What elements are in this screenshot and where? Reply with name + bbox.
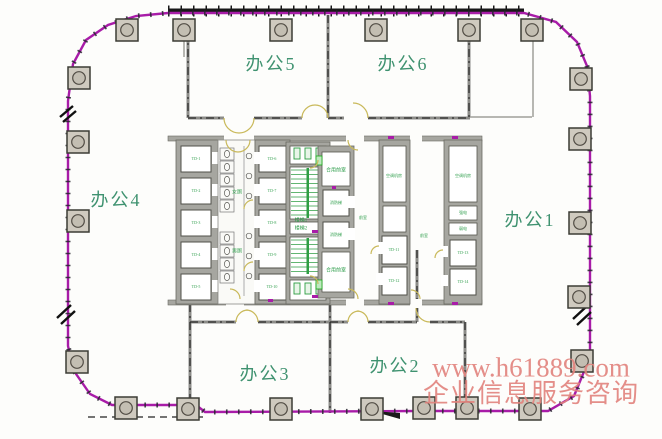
office-2-label: 办公2 xyxy=(370,357,421,375)
elevator-tag: TD-2 xyxy=(192,189,201,193)
elevator-tag: TD-10 xyxy=(267,285,278,289)
elevator-tag: TD-13 xyxy=(458,251,469,255)
elevator-tag: TD-7 xyxy=(268,189,277,193)
stair-2-label: 楼梯2 xyxy=(295,227,308,232)
wc-men-label: 男厕 xyxy=(232,250,242,255)
front-room-right-label: 前室 xyxy=(420,234,428,238)
office-5-label: 办公5 xyxy=(246,55,297,73)
office-6-label: 办公6 xyxy=(378,55,429,73)
toilet-strip xyxy=(218,140,255,304)
stair-rail-1 xyxy=(307,168,310,218)
stair-rail-2 xyxy=(307,238,310,274)
elevator-tag: TD-12 xyxy=(389,279,400,283)
wc-women-label: 女厕 xyxy=(232,191,242,196)
fire-elevator-1-label: 消防梯 xyxy=(330,201,342,205)
elevator-tag: TD-9 xyxy=(268,253,277,257)
elevator-tag: TD-8 xyxy=(268,221,277,225)
front-room-bottom-label: 合用前室 xyxy=(326,269,346,274)
front-room-mid-label: 前室 xyxy=(359,216,367,220)
floor-plan-canvas: 办公1 办公2 办公3 办公4 办公5 办公6 合用前室 合用前室 楼梯1 楼梯… xyxy=(0,0,662,439)
elevator-tag: TD-4 xyxy=(192,253,201,257)
strong-power-label: 强电 xyxy=(459,211,467,215)
office-3-label: 办公3 xyxy=(240,365,291,383)
fire-elevator-2-label: 消防梯 xyxy=(330,233,342,237)
machine-room-2-label: 空调机房 xyxy=(455,174,471,178)
elevator-tag: TD-5 xyxy=(192,285,201,289)
elevator-tag: TD-6 xyxy=(268,157,277,161)
office-4-label: 办公4 xyxy=(91,191,142,209)
elevator-tag: TD-11 xyxy=(389,248,400,252)
weak-power-label: 弱电 xyxy=(459,227,467,231)
watermark-url: www.h61889.com xyxy=(432,355,630,382)
elevator-tag: TD-3 xyxy=(192,221,201,225)
machine-room-1-label: 空调机房 xyxy=(386,174,402,178)
office-1-label: 办公1 xyxy=(505,211,556,229)
watermark-caption: 企业信息服务咨询 xyxy=(423,381,639,407)
front-room-top-label: 合用前室 xyxy=(326,169,346,174)
stair-1-label: 楼梯1 xyxy=(295,219,308,224)
elevator-tag: TD-14 xyxy=(458,280,469,284)
elevator-tag: TD-1 xyxy=(192,157,201,161)
